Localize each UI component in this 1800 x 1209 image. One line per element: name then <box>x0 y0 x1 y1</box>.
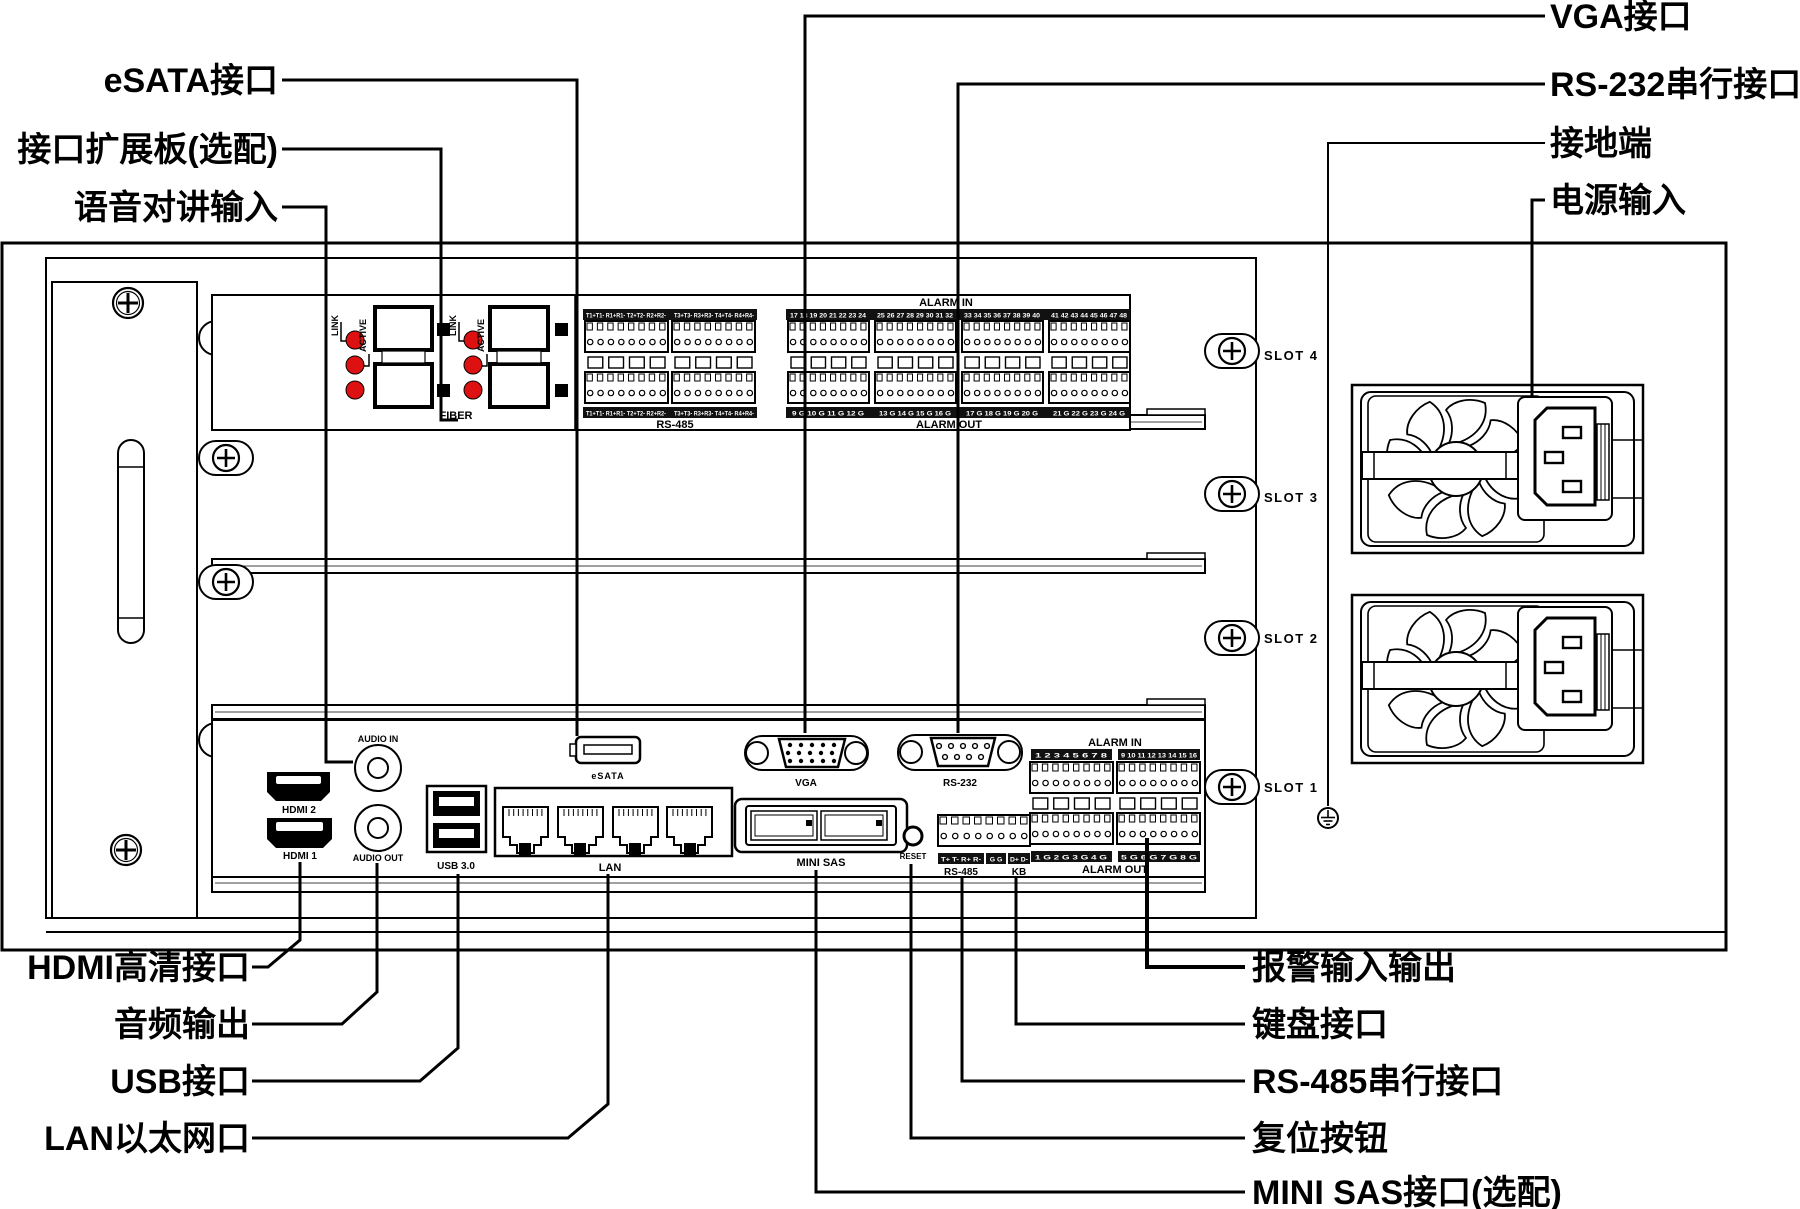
terminal-tooth <box>1084 815 1089 822</box>
terminal-tooth <box>1051 374 1056 381</box>
vga-pin <box>830 751 834 755</box>
alarm-out-strip: 13 G 14 G 15 G 16 G <box>879 411 951 418</box>
terminal-tooth <box>1053 815 1058 822</box>
terminal-tooth <box>736 323 741 330</box>
vga-screw <box>746 742 768 764</box>
callout-keyboard: 键盘接口 <box>1252 1006 1388 1044</box>
jumper <box>898 357 912 368</box>
vga-pin <box>799 743 803 747</box>
jumper <box>1093 357 1107 368</box>
terminal-tooth <box>1035 323 1040 330</box>
vga-pin <box>788 743 792 747</box>
callout-minisas: MINI SAS接口(选配) <box>1252 1174 1562 1209</box>
minisas-latch <box>806 820 812 826</box>
terminal-pin <box>1005 390 1010 395</box>
terminal-tooth <box>1181 815 1186 822</box>
terminal-tooth <box>716 323 721 330</box>
terminal-pin <box>1015 339 1020 344</box>
terminal-pin <box>619 339 624 344</box>
terminal-tooth <box>639 374 644 381</box>
terminal-tooth <box>907 323 912 330</box>
terminal-pin <box>995 339 1000 344</box>
terminal-tooth <box>1112 323 1117 330</box>
terminal-pin <box>1105 780 1110 785</box>
jumper <box>696 357 711 368</box>
alarm-out-strip: 9 G 10 G 11 G 12 G <box>792 411 864 418</box>
terminal-pin <box>1122 339 1127 344</box>
terminal-tooth <box>1171 764 1176 771</box>
terminal-pin <box>1061 339 1066 344</box>
rs485-kb-terminal-part <box>938 815 1030 846</box>
terminal-pin <box>887 339 892 344</box>
rs232-screw <box>900 741 922 763</box>
terminal-tooth <box>726 374 731 381</box>
terminal-tooth <box>597 374 602 381</box>
terminal-pin <box>1082 339 1087 344</box>
lan-port-number: 4 <box>687 845 692 855</box>
g-strip: G G <box>990 857 1002 864</box>
rail-tab <box>1147 553 1205 559</box>
rs485-strip: T3+T3- R3+R3- T4+T4- R4+R4- <box>674 313 754 320</box>
terminal-tooth <box>716 374 721 381</box>
usb-label: USB 3.0 <box>437 861 475 872</box>
fiber-cage-mid <box>497 351 541 363</box>
callout-vga: VGA接口 <box>1550 0 1692 36</box>
jumper <box>1052 357 1066 368</box>
terminal-tooth <box>994 374 999 381</box>
vga-pin <box>810 759 814 763</box>
terminal-pin <box>650 339 655 344</box>
terminal-tooth <box>684 374 689 381</box>
alarm-out-strip: 1 G 2 G 3 G 4 G <box>1035 855 1107 862</box>
terminal-pin <box>629 339 634 344</box>
iec-clip <box>1597 424 1609 500</box>
terminal-tooth <box>1181 764 1186 771</box>
terminal-pin <box>685 339 690 344</box>
terminal-tooth <box>1129 764 1134 771</box>
terminal-tooth <box>1150 815 1155 822</box>
terminal-pin <box>1035 390 1040 395</box>
lan-port-number: 1 <box>522 845 527 855</box>
terminal-pin <box>851 390 856 395</box>
terminal-pin <box>1171 831 1176 836</box>
terminal-pin <box>695 390 700 395</box>
terminal-pin <box>747 339 752 344</box>
terminal-pin <box>1122 390 1127 395</box>
terminal-tooth <box>608 323 613 330</box>
terminal-pin <box>608 390 613 395</box>
terminal-pin <box>598 339 603 344</box>
terminal-pin <box>706 390 711 395</box>
terminal-pin <box>1130 780 1135 785</box>
jumper <box>609 357 624 368</box>
rs232-pin <box>961 744 966 749</box>
terminal-tooth <box>1061 374 1066 381</box>
terminal-tooth <box>940 817 947 824</box>
terminal-pin <box>1061 390 1066 395</box>
terminal-pin <box>674 390 679 395</box>
rs232-label: RS-232 <box>943 778 977 789</box>
terminal-tooth <box>1074 815 1079 822</box>
usb-tongue <box>439 797 474 806</box>
terminal-pin <box>938 339 943 344</box>
callout-audio-talk: 语音对讲输入 <box>74 189 278 227</box>
terminal-tooth <box>1032 764 1037 771</box>
terminal-tooth <box>1122 374 1127 381</box>
kb-strip: D+ D- <box>1010 857 1028 864</box>
terminal-pin <box>861 339 866 344</box>
terminal-tooth <box>994 323 999 330</box>
terminal-tooth <box>608 374 613 381</box>
alarm-in-strip: 9 10 11 12 13 14 15 16 <box>1121 753 1197 760</box>
terminal-pin <box>1092 390 1097 395</box>
minisas-latch <box>876 820 882 826</box>
terminal-pin <box>953 833 958 838</box>
terminal-pin <box>1051 390 1056 395</box>
terminal-pin <box>1140 831 1145 836</box>
terminal-tooth <box>629 374 634 381</box>
terminal-pin <box>639 390 644 395</box>
rear-panel-diagram: LINK ACTIVE LINK ACTIVE 2 1 4 3 FIBER T1… <box>0 0 1800 1209</box>
terminal-tooth <box>984 323 989 330</box>
terminal-tooth <box>918 323 923 330</box>
terminal-pin <box>737 390 742 395</box>
ground-terminal <box>1318 808 1338 828</box>
esata-notch <box>570 744 576 756</box>
terminal-tooth <box>1021 817 1028 824</box>
badge-4: 4 <box>559 326 565 337</box>
terminal-tooth <box>1161 764 1166 771</box>
terminal-tooth <box>1035 374 1040 381</box>
terminal-pin <box>660 339 665 344</box>
terminal-pin <box>1032 780 1037 785</box>
terminal-pin <box>948 390 953 395</box>
terminal-tooth <box>1102 323 1107 330</box>
jumper <box>985 357 999 368</box>
terminal-pin <box>987 833 992 838</box>
rs485-strip: T3+T3- R3+R3- T4+T4- R4+R4- <box>674 411 754 418</box>
terminal-tooth <box>1192 764 1197 771</box>
link-label: LINK <box>330 315 340 336</box>
terminal-pin <box>964 833 969 838</box>
filler-panel <box>52 282 197 918</box>
terminal-pin <box>726 339 731 344</box>
vga-pin <box>832 743 836 747</box>
rail-tab <box>1147 699 1205 705</box>
terminal-tooth <box>998 817 1005 824</box>
hdmi2-label: HDMI 2 <box>282 805 316 816</box>
terminal-pin <box>1043 780 1048 785</box>
terminal-pin <box>831 339 836 344</box>
terminal-pin <box>821 390 826 395</box>
terminal-pin <box>831 390 836 395</box>
terminal-tooth <box>1129 815 1134 822</box>
terminal-tooth <box>820 374 825 381</box>
terminal-tooth <box>938 323 943 330</box>
jumper <box>1113 357 1127 368</box>
rs232-pin <box>937 744 942 749</box>
rs485-label: RS-485 <box>944 867 978 878</box>
terminal-tooth <box>649 323 654 330</box>
terminal-pin <box>1074 780 1079 785</box>
fiber-cage-mid <box>382 351 425 363</box>
terminal-pin <box>650 390 655 395</box>
terminal-tooth <box>1032 815 1037 822</box>
alarm-in-strip: 41 42 43 44 45 46 47 48 <box>1051 313 1127 320</box>
hdmi1-label: HDMI 1 <box>283 851 317 862</box>
terminal-pin <box>841 390 846 395</box>
terminal-pin <box>1025 390 1030 395</box>
terminal-tooth <box>1140 815 1145 822</box>
terminal-pin <box>1151 780 1156 785</box>
terminal-tooth <box>907 374 912 381</box>
esata-tongue <box>584 745 632 754</box>
terminal-pin <box>695 339 700 344</box>
terminal-pin <box>1140 780 1145 785</box>
terminal-pin <box>608 339 613 344</box>
psu <box>1352 595 1643 763</box>
callout-rs485: RS-485串行接口 <box>1252 1063 1503 1101</box>
terminal-tooth <box>747 323 752 330</box>
lan-port-number: 3 <box>632 845 637 855</box>
rs232-pin <box>985 744 990 749</box>
terminal-tooth <box>810 374 815 381</box>
terminal-tooth <box>841 323 846 330</box>
rs232-pin <box>979 755 984 760</box>
terminal-pin <box>1010 833 1015 838</box>
alarm-in-strip: 1 2 3 4 5 6 7 8 <box>1035 753 1107 760</box>
terminal-pin <box>1095 831 1100 836</box>
jumper <box>1120 798 1135 809</box>
rs232-screw <box>998 741 1020 763</box>
terminal-tooth <box>1084 764 1089 771</box>
fan-bar <box>1362 662 1518 689</box>
terminal-tooth <box>938 374 943 381</box>
terminal-pin <box>1015 390 1020 395</box>
terminal-pin <box>995 390 1000 395</box>
terminal-pin <box>1112 339 1117 344</box>
terminal-tooth <box>1105 815 1110 822</box>
terminal-tooth <box>674 323 679 330</box>
jumper <box>939 357 953 368</box>
led <box>346 381 364 399</box>
slot3-label: SLOT 3 <box>1264 490 1319 505</box>
terminal-pin <box>1064 780 1069 785</box>
jack-inner <box>368 758 388 778</box>
jumper <box>1033 798 1048 809</box>
terminal-pin <box>790 390 795 395</box>
terminal-tooth <box>1025 374 1030 381</box>
terminal-tooth <box>660 323 665 330</box>
terminal-pin <box>1119 780 1124 785</box>
alarm-in-strip: 17 18 19 20 21 22 23 24 <box>790 313 866 320</box>
terminal-pin <box>898 390 903 395</box>
jumper <box>1141 798 1156 809</box>
callout-power: 电源输入 <box>1550 182 1686 220</box>
terminal-tooth <box>618 374 623 381</box>
jumper <box>675 357 690 368</box>
terminal-pin <box>1043 831 1048 836</box>
terminal-pin <box>1025 339 1030 344</box>
terminal-pin <box>1022 833 1027 838</box>
vga-pin <box>810 743 814 747</box>
terminal-tooth <box>1081 323 1086 330</box>
callout-usb: USB接口 <box>110 1063 250 1101</box>
jumper <box>650 357 665 368</box>
fiber-cage <box>490 364 548 407</box>
diagram-canvas: LINK ACTIVE LINK ACTIVE 2 1 4 3 FIBER T1… <box>0 0 1800 1209</box>
terminal-pin <box>1082 390 1087 395</box>
alarm-in-label: ALARM IN <box>1088 737 1142 749</box>
alarm-in-label: ALARM IN <box>919 297 973 309</box>
terminal-tooth <box>820 323 825 330</box>
terminal-pin <box>1119 831 1124 836</box>
terminal-tooth <box>974 374 979 381</box>
terminal-tooth <box>887 374 892 381</box>
terminal-tooth <box>861 374 866 381</box>
terminal-pin <box>716 339 721 344</box>
terminal-tooth <box>1005 374 1010 381</box>
terminal-tooth <box>1071 323 1076 330</box>
terminal-pin <box>790 339 795 344</box>
vga-screw <box>845 742 867 764</box>
jumper <box>1182 798 1197 809</box>
terminal-pin <box>1072 390 1077 395</box>
terminal-pin <box>1161 780 1166 785</box>
terminal-tooth <box>790 374 795 381</box>
jumper <box>832 357 846 368</box>
terminal-tooth <box>1025 323 1030 330</box>
terminal-tooth <box>597 323 602 330</box>
terminal-pin <box>1084 780 1089 785</box>
alarm-out-label: ALARM OUT <box>916 419 982 431</box>
terminal-tooth <box>928 323 933 330</box>
terminal-tooth <box>877 374 882 381</box>
terminal-tooth <box>660 374 665 381</box>
terminal-tooth <box>1063 815 1068 822</box>
terminal-pin <box>1092 339 1097 344</box>
rs485-strip: T1+T1- R1+R1- T2+T2- R2+R2- <box>586 411 666 418</box>
esata-label: eSATA <box>591 771 624 781</box>
terminal-pin <box>1084 831 1089 836</box>
terminal-tooth <box>1005 323 1010 330</box>
terminal-pin <box>1005 339 1010 344</box>
slot1-label: SLOT 1 <box>1264 780 1319 795</box>
terminal-pin <box>619 390 624 395</box>
terminal-tooth <box>674 374 679 381</box>
terminal-pin <box>948 339 953 344</box>
psu <box>1352 385 1643 553</box>
terminal-pin <box>974 390 979 395</box>
terminal-tooth <box>639 323 644 330</box>
terminal-pin <box>747 390 752 395</box>
kb-label: KB <box>1012 867 1026 878</box>
jumper <box>1072 357 1086 368</box>
callout-esata: eSATA接口 <box>104 62 278 100</box>
vga-pin <box>821 743 825 747</box>
jumper <box>737 357 752 368</box>
rs232-pin <box>967 755 972 760</box>
terminal-tooth <box>1094 764 1099 771</box>
terminal-pin <box>1112 390 1117 395</box>
vga-pin <box>808 751 812 755</box>
terminal-pin <box>1130 831 1135 836</box>
terminal-pin <box>1192 831 1197 836</box>
terminal-pin <box>1064 831 1069 836</box>
rs232-pin <box>973 744 978 749</box>
terminal-pin <box>1095 780 1100 785</box>
terminal-tooth <box>948 323 953 330</box>
jumper <box>878 357 892 368</box>
terminal-tooth <box>1094 815 1099 822</box>
fan-bar <box>1362 452 1518 479</box>
terminal-pin <box>985 390 990 395</box>
rs232-pin <box>949 744 954 749</box>
terminal-pin <box>887 390 892 395</box>
iec-clip <box>1597 634 1609 710</box>
terminal-pin <box>1053 780 1058 785</box>
fiber-cage <box>375 307 432 350</box>
audio-out-jack: AUDIO OUT <box>353 805 404 863</box>
terminal-tooth <box>726 323 731 330</box>
terminal-tooth <box>948 374 953 381</box>
terminal-pin <box>1032 831 1037 836</box>
terminal-tooth <box>695 323 700 330</box>
terminal-tooth <box>1061 323 1066 330</box>
terminal-pin <box>811 390 816 395</box>
terminal-tooth <box>1081 374 1086 381</box>
terminal-tooth <box>705 323 710 330</box>
jumper <box>1162 798 1177 809</box>
terminal-tooth <box>629 323 634 330</box>
terminal-tooth <box>684 323 689 330</box>
handle-slot <box>118 440 144 643</box>
fiber-cage <box>375 364 432 407</box>
terminal-tooth <box>736 374 741 381</box>
jumper <box>1075 798 1090 809</box>
minisas-label: MINI SAS <box>797 857 846 869</box>
audio-in-jack: AUDIO IN <box>355 734 401 791</box>
terminal-pin <box>1151 831 1156 836</box>
terminal-pin <box>918 390 923 395</box>
terminal-tooth <box>851 374 856 381</box>
terminal-pin <box>1074 831 1079 836</box>
terminal-pin <box>821 339 826 344</box>
terminal-pin <box>660 390 665 395</box>
rs485-label: RS-485 <box>656 419 693 431</box>
terminal-pin <box>587 339 592 344</box>
terminal-pin <box>1161 831 1166 836</box>
rs232-body <box>931 738 995 766</box>
terminal-tooth <box>1009 817 1016 824</box>
terminal-tooth <box>963 817 970 824</box>
jumper <box>630 357 645 368</box>
terminal-pin <box>587 390 592 395</box>
jumper <box>1095 798 1110 809</box>
alarm-out-strip: 17 G 18 G 19 G 20 G <box>966 411 1038 418</box>
audio-out-label: AUDIO OUT <box>353 853 404 863</box>
alarm-out-strip: 21 G 22 G 23 G 24 G <box>1053 411 1125 418</box>
active-label: ACTIVE <box>358 319 368 352</box>
terminal-tooth <box>975 817 982 824</box>
terminal-pin <box>861 390 866 395</box>
terminal-tooth <box>810 323 815 330</box>
terminal-pin <box>908 339 913 344</box>
alarm-out-strip: 5 G 6 G 7 G 8 G <box>1121 855 1197 862</box>
terminal-pin <box>1035 339 1040 344</box>
terminal-tooth <box>1015 374 1020 381</box>
callout-audio-out: 音频输出 <box>114 1006 250 1044</box>
